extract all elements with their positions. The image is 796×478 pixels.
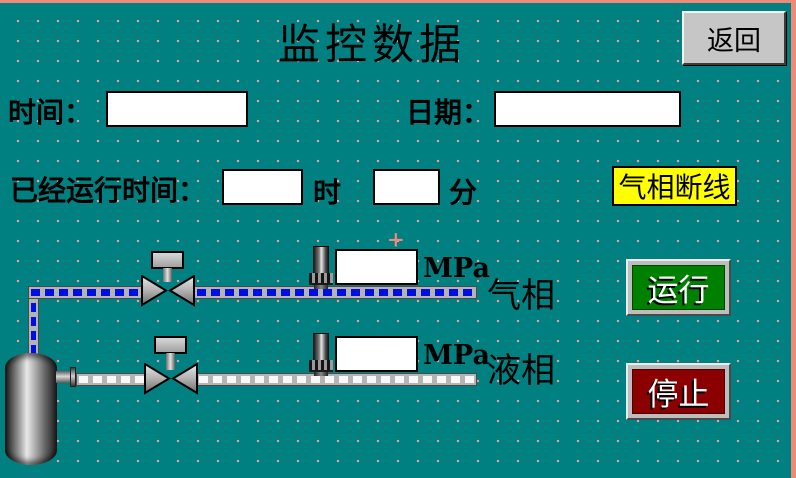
sensor-ribs — [309, 273, 333, 285]
runtime-hours-display — [222, 169, 303, 205]
date-label: 日期： — [406, 91, 490, 131]
liquid-flow-dashes — [79, 376, 144, 383]
gas-pressure-sensor-icon — [309, 246, 333, 289]
gas-valve[interactable] — [141, 251, 195, 307]
stop-button-face: 停止 — [632, 369, 725, 414]
run-button-face: 运行 — [632, 265, 725, 310]
liquid-valve-body-icon — [144, 363, 198, 395]
stop-button[interactable]: 停止 — [626, 363, 731, 420]
runtime-minutes-display — [373, 169, 440, 205]
sensor-barrel — [313, 333, 329, 360]
gas-pressure-unit: MPa — [423, 253, 490, 284]
time-label: 时间： — [8, 91, 92, 131]
gas-alarm-badge: 气相断线 — [612, 166, 737, 206]
gas-flow-dashes — [197, 289, 474, 296]
gas-line-label: 气相 — [487, 268, 555, 317]
liquid-pipe-right-segment — [196, 373, 477, 386]
runtime-hours-unit: 时 — [313, 171, 341, 211]
runtime-label: 已经运行时间： — [10, 169, 206, 209]
storage-tank — [5, 353, 57, 465]
gas-pipe-right-segment — [194, 286, 477, 299]
sensor-barrel — [313, 246, 329, 273]
gas-valve-actuator — [151, 251, 184, 269]
sensor-ribs — [309, 360, 333, 372]
liquid-pressure-sensor-icon — [309, 333, 333, 376]
liquid-flow-dashes — [199, 376, 474, 383]
back-button[interactable]: 返回 — [682, 11, 786, 65]
gas-valve-body-icon — [141, 275, 195, 307]
gas-flow-dashes — [31, 289, 141, 296]
page-title: 监控数据 — [278, 11, 488, 72]
liquid-pressure-unit: MPa — [423, 340, 490, 371]
sensor-cap — [314, 285, 328, 289]
gas-pressure-display — [335, 249, 418, 285]
hmi-screen: 监控数据 返回 时间： 日期： 已经运行时间： 时 分 气相断线 + MPa 气… — [0, 0, 796, 478]
liquid-valve-actuator — [154, 336, 187, 354]
liquid-pipe-left-segment — [76, 373, 147, 386]
liquid-valve[interactable] — [144, 336, 198, 392]
time-display — [106, 91, 248, 127]
date-display — [494, 91, 681, 127]
gas-pipe-left-segment — [28, 286, 144, 299]
run-button[interactable]: 运行 — [626, 259, 731, 316]
liquid-line-label: 液相 — [487, 343, 555, 392]
sensor-cap — [314, 372, 328, 376]
liquid-pressure-display — [335, 336, 418, 372]
runtime-minutes-unit: 分 — [449, 171, 477, 211]
